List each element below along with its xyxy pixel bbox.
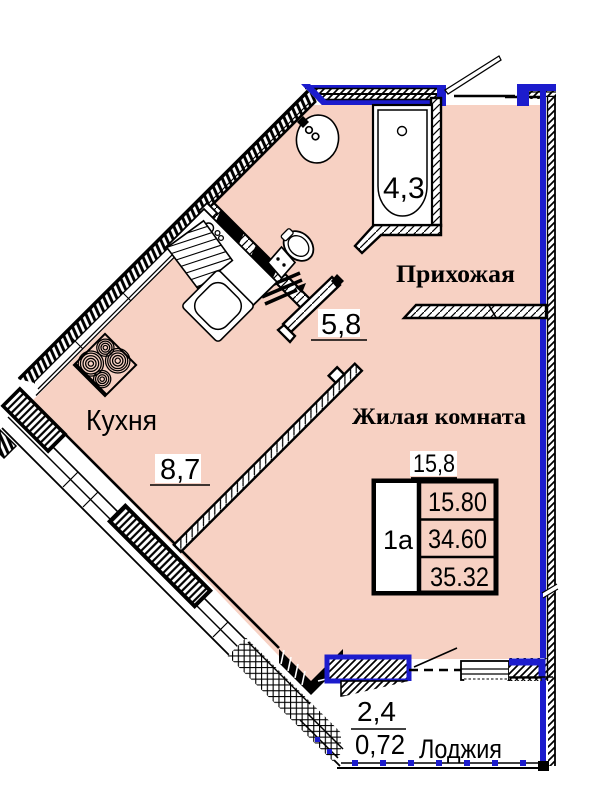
svg-text:4,3: 4,3: [383, 172, 425, 205]
svg-text:34.60: 34.60: [428, 524, 487, 554]
svg-text:2,4: 2,4: [357, 696, 396, 727]
svg-text:1а: 1а: [383, 525, 414, 555]
svg-text:8,7: 8,7: [160, 454, 200, 486]
svg-text:Кухня: Кухня: [86, 405, 157, 437]
svg-text:Прихожая: Прихожая: [396, 261, 515, 288]
svg-text:0,72: 0,72: [355, 729, 405, 760]
svg-text:15.80: 15.80: [428, 487, 487, 517]
svg-text:15,8: 15,8: [413, 450, 455, 478]
svg-text:5,8: 5,8: [321, 309, 361, 341]
svg-text:Лоджия: Лоджия: [419, 734, 502, 764]
svg-text:Жилая комната: Жилая комната: [352, 404, 527, 429]
svg-text:35.32: 35.32: [430, 562, 489, 592]
